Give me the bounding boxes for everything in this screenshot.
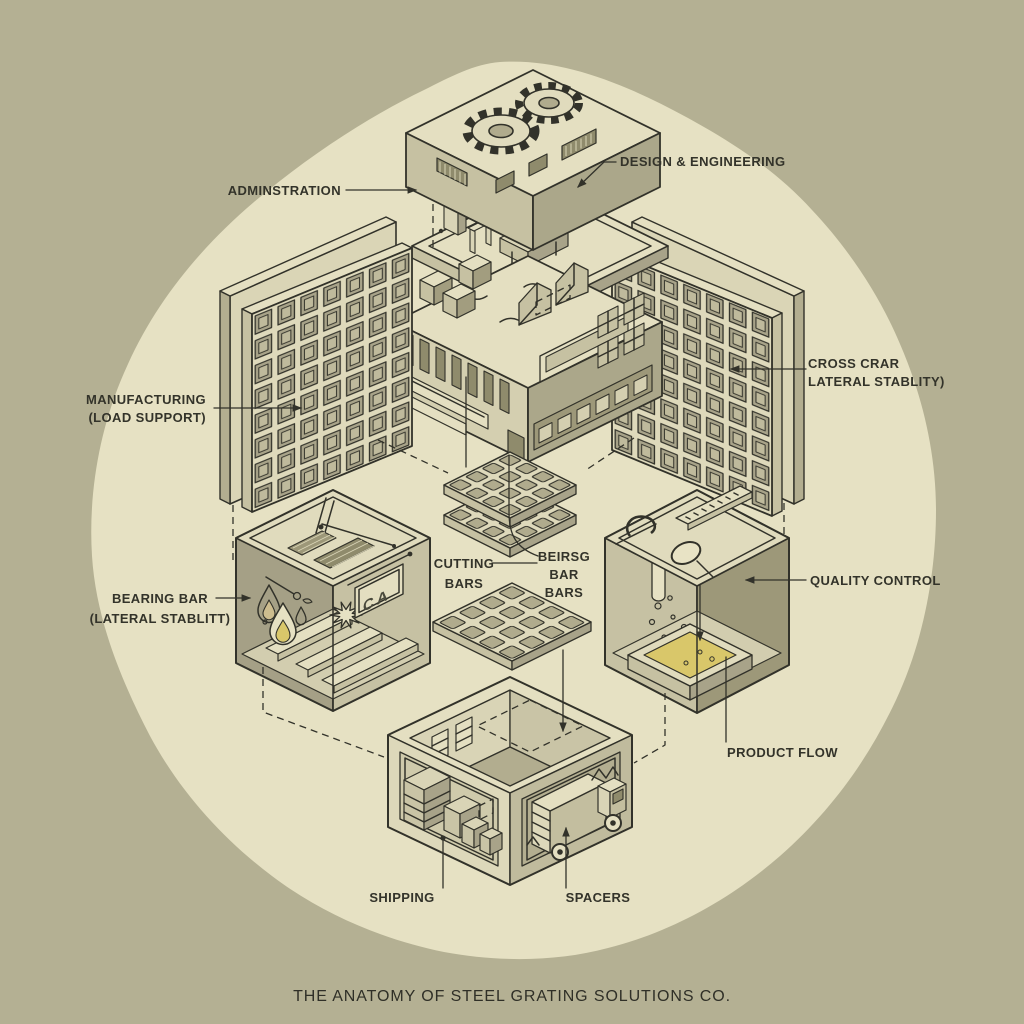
page-title: THE ANATOMY OF STEEL GRATING SOLUTIONS C…: [293, 988, 731, 1005]
label-design-engineering: DESIGN & ENGINEERING: [620, 154, 785, 169]
crate-stack: [404, 767, 450, 830]
label-cross-bar: CROSS CRAR: [808, 356, 900, 371]
label-cutting-bars-sub: BARS: [445, 576, 483, 591]
label-manufacturing-sub: (LOAD SUPPORT): [88, 410, 206, 425]
label-shipping: SHIPPING: [369, 890, 434, 905]
label-bearing-bar-sub: (LATERAL STABLITT): [90, 611, 231, 626]
label-administration: ADMINSTRATION: [228, 183, 341, 198]
label-product-flow: PRODUCT FLOW: [727, 745, 838, 760]
label-bearing-bar-bars: BEIRSG: [538, 549, 590, 564]
crate: [480, 828, 502, 855]
poster: CA: [0, 0, 1024, 1024]
label-manufacturing: MANUFACTURING: [86, 392, 206, 407]
label-cross-bar-sub: LATERAL STABLITY): [808, 374, 945, 389]
label-bearing-bar-bars-2: BAR: [549, 567, 579, 582]
label-bearing-bar-bars-3: BARS: [545, 585, 583, 600]
label-spacers: SPACERS: [566, 890, 631, 905]
label-bearing-bar: BEARING BAR: [112, 591, 208, 606]
label-quality-control: QUALITY CONTROL: [810, 573, 941, 588]
label-cutting-bars: CUTTING: [434, 556, 495, 571]
anatomy-diagram: CA: [0, 0, 1024, 1024]
bearing-bar-box: CA: [236, 490, 430, 711]
